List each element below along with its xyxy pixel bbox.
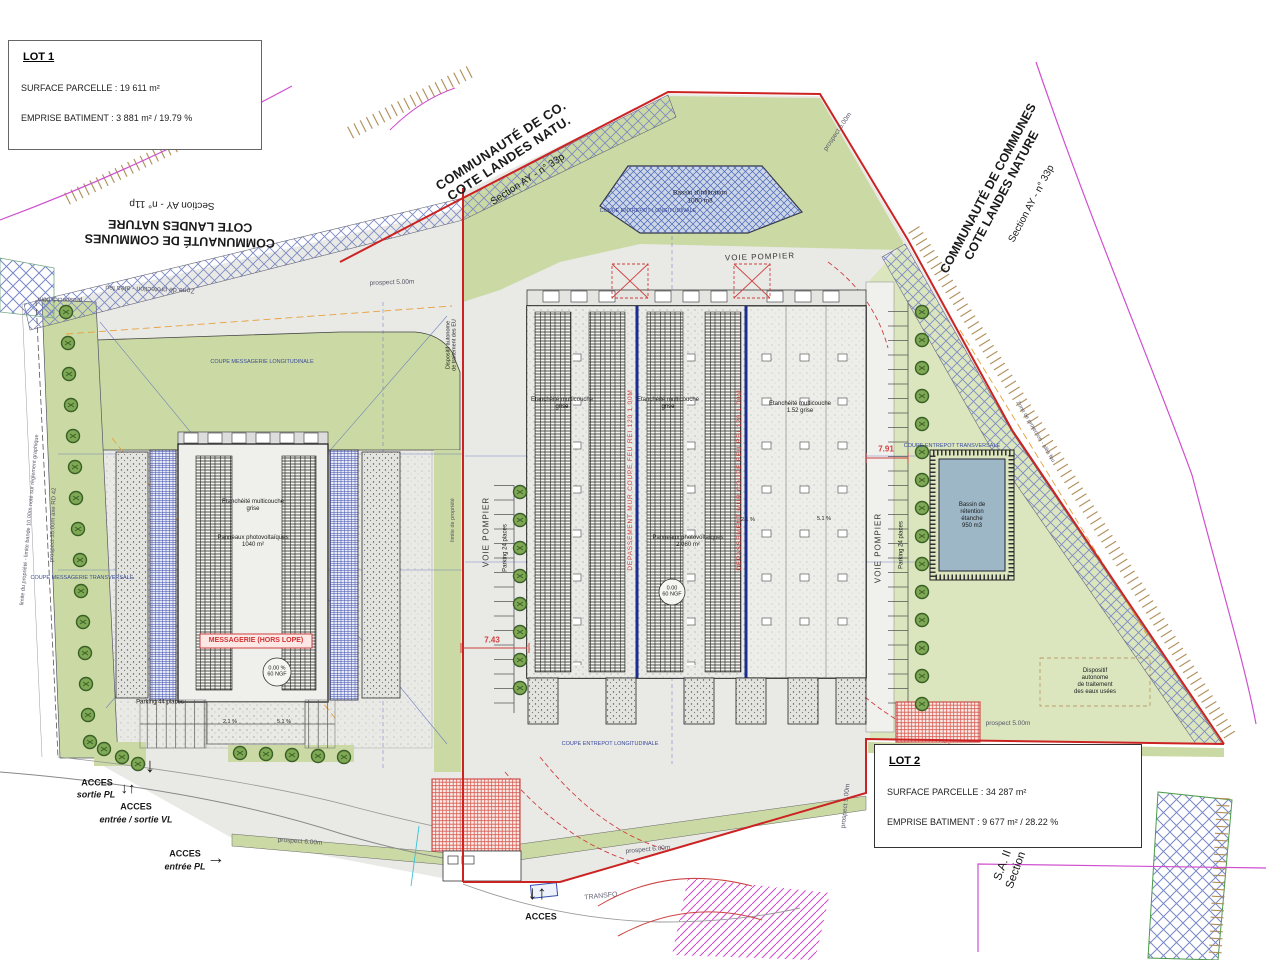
lot1-title: LOT 1	[23, 51, 261, 63]
lot2-info-box: LOT 2 SURFACE PARCELLE : 34 287 m² EMPRI…	[874, 744, 1142, 848]
lot1-info-box: LOT 1 SURFACE PARCELLE : 19 611 m² EMPRI…	[8, 40, 262, 150]
building-entrepot	[527, 290, 866, 724]
lot1-surface: SURFACE PARCELLE : 19 611 m²	[21, 83, 261, 93]
basin-retention	[930, 450, 1014, 580]
site-plan: LOT 1 SURFACE PARCELLE : 19 611 m² EMPRI…	[0, 0, 1280, 960]
lot2-title: LOT 2	[889, 755, 1141, 767]
lot1-emprise: EMPRISE BATIMENT : 3 881 m² / 19.79 %	[21, 113, 261, 123]
green-mid-strip	[434, 450, 461, 772]
red-zone-2	[896, 702, 980, 742]
lot2-emprise: EMPRISE BATIMENT : 9 677 m² / 28.22 %	[887, 817, 1141, 827]
building-messagerie	[116, 432, 400, 744]
lot2-surface: SURFACE PARCELLE : 34 287 m²	[887, 787, 1141, 797]
red-zone-1	[432, 779, 520, 851]
hatch-patch-topleft	[0, 258, 54, 318]
transfo-box	[530, 883, 557, 899]
pink-zone	[672, 878, 830, 960]
